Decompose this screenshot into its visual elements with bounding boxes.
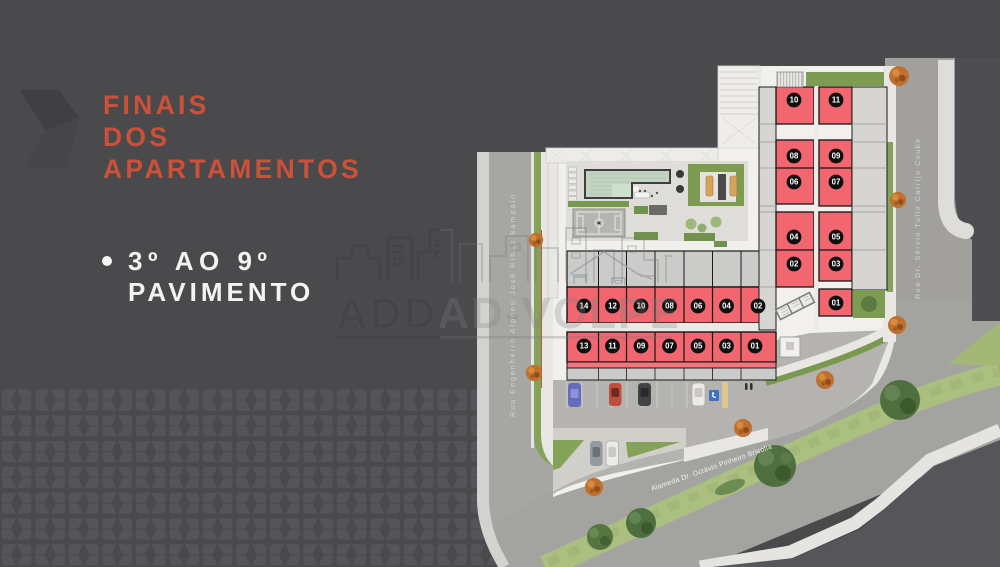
svg-text:06: 06 [694, 302, 703, 311]
svg-text:Rua Dr. Sérvio Tulio Carrijo C: Rua Dr. Sérvio Tulio Carrijo Coube [915, 137, 922, 299]
svg-text:FINAIS: FINAIS [103, 90, 210, 120]
svg-text:10: 10 [790, 96, 799, 105]
svg-text:04: 04 [790, 233, 799, 242]
svg-text:01: 01 [832, 299, 841, 308]
svg-text:03: 03 [722, 342, 731, 351]
svg-text:04: 04 [722, 302, 731, 311]
svg-text:3º AO 9º: 3º AO 9º [128, 246, 272, 276]
svg-text:06: 06 [790, 178, 799, 187]
svg-text:05: 05 [832, 233, 841, 242]
svg-text:05: 05 [694, 342, 703, 351]
svg-text:01: 01 [751, 342, 760, 351]
svg-text:DOS: DOS [103, 122, 170, 152]
svg-text:02: 02 [790, 260, 799, 269]
svg-text:11: 11 [608, 342, 617, 351]
svg-text:02: 02 [754, 302, 763, 311]
svg-text:07: 07 [832, 178, 841, 187]
svg-text:13: 13 [580, 342, 589, 351]
svg-text:APARTAMENTOS: APARTAMENTOS [103, 154, 362, 184]
svg-text:03: 03 [832, 260, 841, 269]
svg-text:PAVIMENTO: PAVIMENTO [128, 277, 314, 307]
svg-text:09: 09 [832, 152, 841, 161]
svg-text:11: 11 [832, 96, 841, 105]
svg-text:09: 09 [637, 342, 646, 351]
svg-text:08: 08 [790, 152, 799, 161]
svg-text:07: 07 [665, 342, 674, 351]
